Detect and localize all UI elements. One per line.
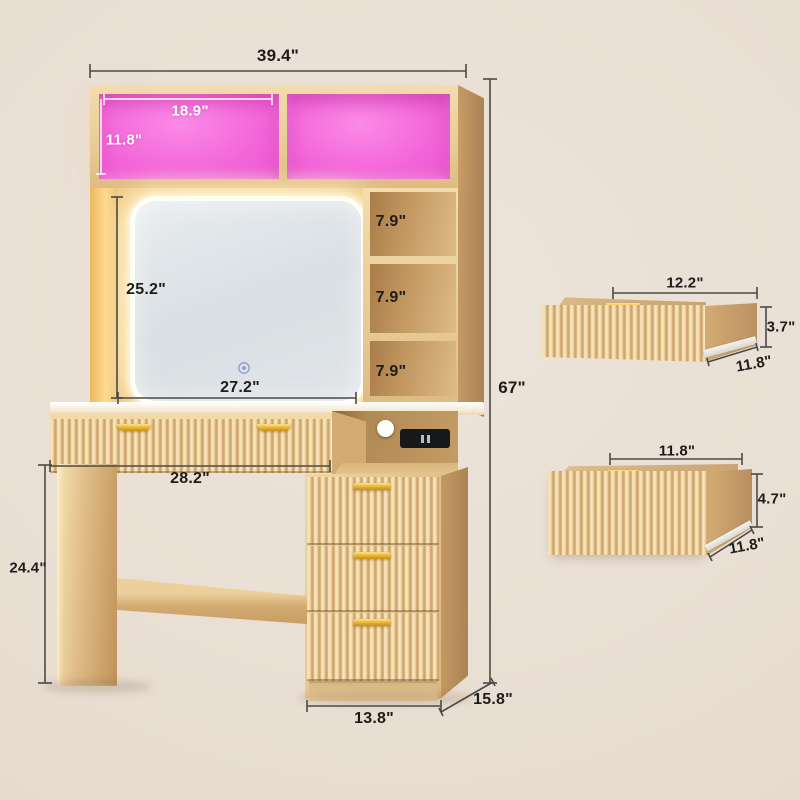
product-dimension-diagram: 39.4" 18.9" 11.8" 25.2" 27.2" 7.9" 7.9" …: [0, 0, 800, 800]
cabinet-side-panel: [440, 467, 468, 699]
dim-desktop-width-label: 28.2": [170, 470, 210, 488]
dim-hutch-cubby-height-label: 11.8": [106, 132, 142, 149]
usb-port-icon: [421, 435, 424, 443]
dim-top-drawer-height-label: 3.7": [767, 319, 796, 336]
dim-leg-height-label: 24.4": [9, 560, 46, 577]
floor-shadow: [298, 691, 473, 705]
support-crossbar: [117, 576, 307, 626]
power-strip: [400, 429, 450, 448]
detail-drawer-bottom-front: [548, 471, 708, 555]
dim-overall-width-label: 39.4": [257, 46, 299, 66]
dim-side-shelf-2-label: 7.9": [376, 289, 407, 307]
vanity-side-panel: [458, 85, 484, 417]
dim-cabinet-width-label: 13.8": [354, 710, 394, 728]
wireless-charger-pad: [377, 420, 394, 437]
cabinet-drawer-1-handle: [353, 483, 391, 490]
left-leg-panel: [57, 464, 117, 686]
cabinet-drawer-2-handle: [353, 552, 391, 559]
cabinet-drawer-3-handle: [353, 619, 391, 626]
dim-top-drawer-depth-label: 11.8": [735, 352, 774, 375]
dim-hutch-cubby-width-label: 18.9": [171, 103, 208, 120]
floor-shadow: [42, 680, 152, 693]
dim-top-drawer-width-label: 12.2": [666, 275, 703, 292]
detail-drawer-top-front: [542, 305, 706, 362]
mirror-touch-sensor-icon: [237, 361, 251, 375]
dim-bottom-drawer-width-label: 11.8": [659, 443, 695, 460]
dim-side-shelf-3-label: 7.9": [376, 363, 407, 381]
dim-depth-label: 15.8": [473, 691, 513, 709]
dim-overall-height-label: 67": [498, 378, 526, 398]
usb-port-icon: [427, 435, 430, 443]
desk-drawer-handle-right: [257, 424, 291, 431]
dim-mirror-width-label: 27.2": [220, 379, 260, 397]
hutch-left-post: [90, 188, 118, 403]
hutch-led-cubby-right: [287, 94, 450, 179]
dim-mirror-height-label: 25.2": [126, 281, 166, 299]
dim-bottom-drawer-height-label: 4.7": [758, 491, 787, 508]
desk-drawer-handle-left: [117, 424, 151, 431]
dim-side-shelf-1-label: 7.9": [376, 213, 407, 231]
